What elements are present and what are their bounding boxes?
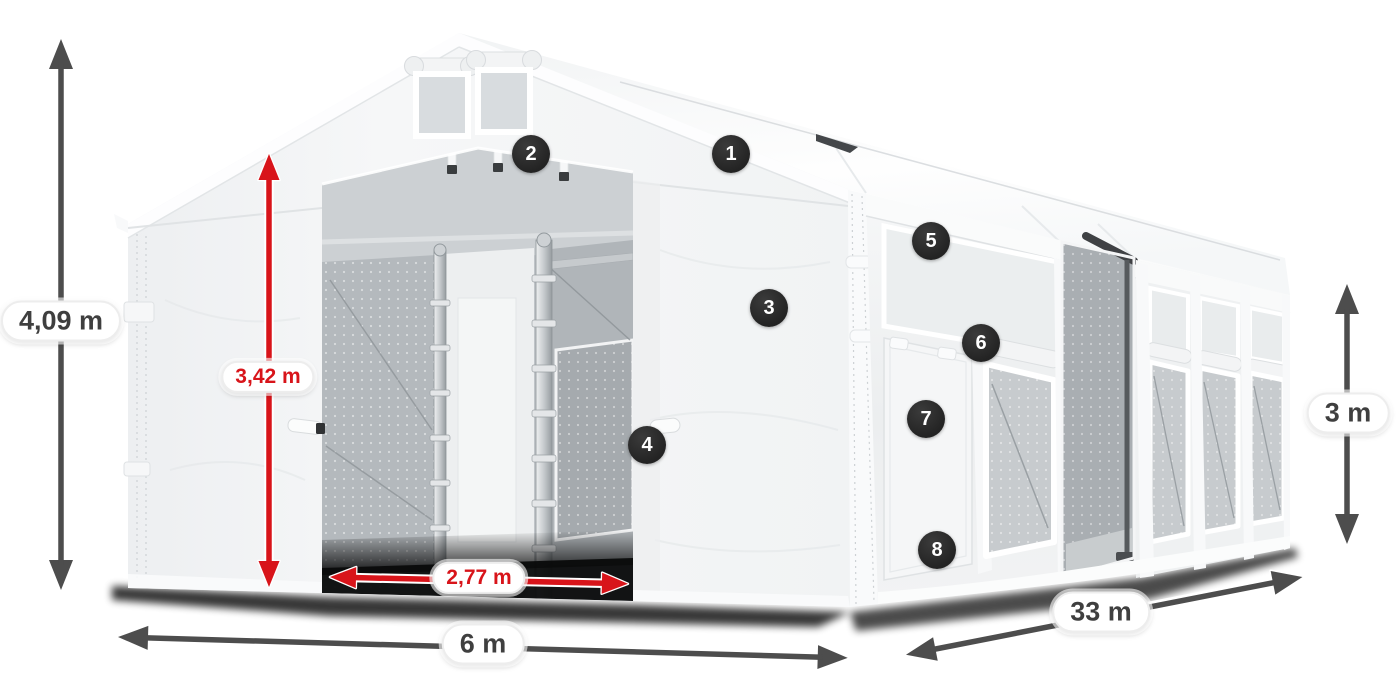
callout-badge-4[interactable]: 4 [628, 426, 666, 464]
tent-illustration [0, 0, 1400, 700]
gable-window-right [467, 51, 542, 133]
dimension-label-side-length: 33 m [1052, 591, 1150, 632]
dimension-label-entrance-width: 2,77 m [432, 562, 525, 594]
entrance-interior [322, 138, 633, 601]
callout-badge-7[interactable]: 7 [907, 400, 945, 438]
callout-badge-1[interactable]: 1 [712, 135, 750, 173]
open-side-section [1062, 236, 1134, 578]
dimension-label-total-height: 4,09 m [1, 300, 121, 341]
callout-badge-2[interactable]: 2 [512, 135, 550, 173]
callout-badge-8[interactable]: 8 [918, 531, 956, 569]
dimension-label-inner-height: 3,42 m [221, 361, 314, 393]
callout-badge-5[interactable]: 5 [912, 222, 950, 260]
far-side-sections [1136, 260, 1290, 578]
dimension-label-front-width: 6 m [442, 623, 525, 664]
gable-window-left [405, 57, 480, 137]
callout-badge-6[interactable]: 6 [962, 324, 1000, 362]
callout-badge-3[interactable]: 3 [750, 289, 788, 327]
tent-dimension-diagram: 4,09 m 3,42 m 2,77 m 6 m 33 m 3 m 1 2 3 … [0, 0, 1400, 700]
dimension-label-side-height: 3 m [1307, 392, 1390, 433]
